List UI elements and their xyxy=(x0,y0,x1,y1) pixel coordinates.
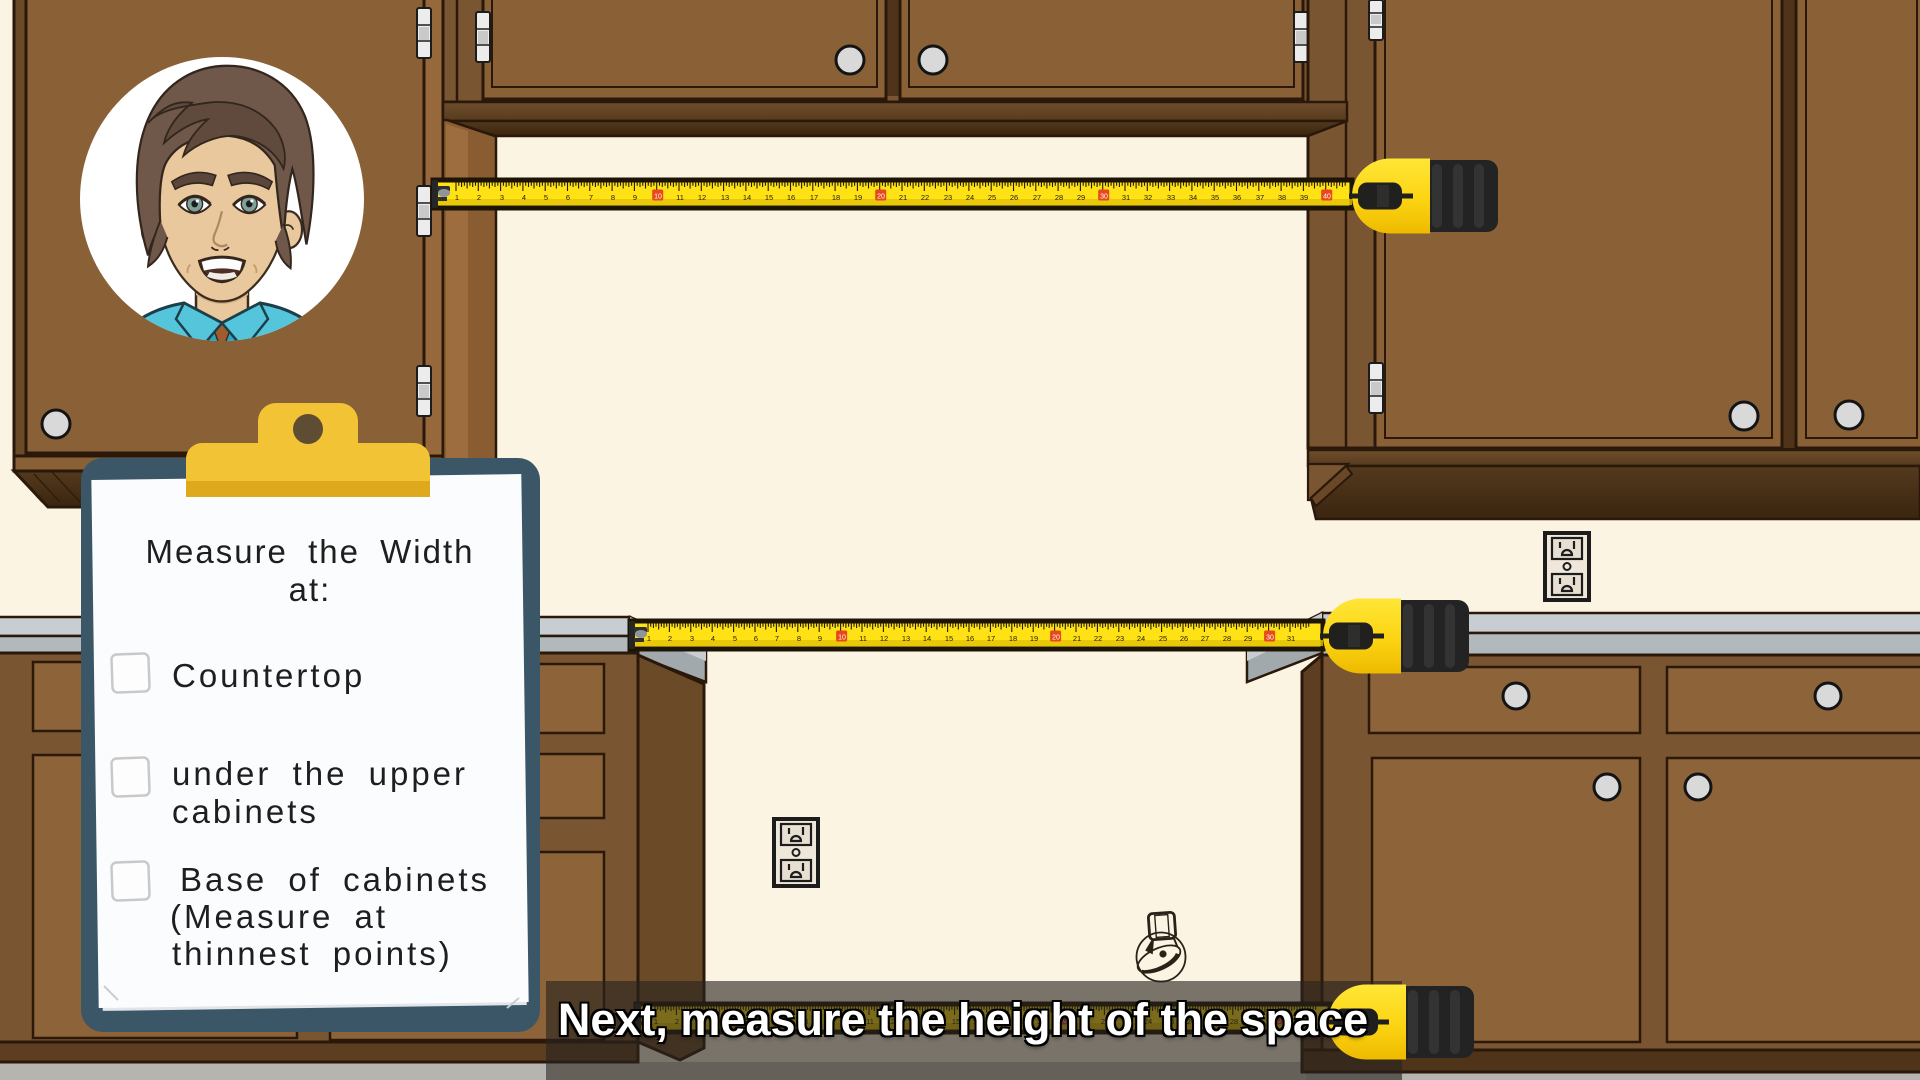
svg-text:6: 6 xyxy=(566,193,570,202)
svg-text:19: 19 xyxy=(1030,634,1038,643)
svg-text:18: 18 xyxy=(832,193,840,202)
svg-text:24: 24 xyxy=(966,193,974,202)
svg-text:4: 4 xyxy=(522,193,526,202)
svg-text:40: 40 xyxy=(1323,194,1331,201)
svg-text:4: 4 xyxy=(711,634,715,643)
svg-text:30: 30 xyxy=(1100,194,1108,201)
svg-text:16: 16 xyxy=(966,634,974,643)
svg-text:31: 31 xyxy=(1122,193,1130,202)
svg-text:10: 10 xyxy=(838,635,846,642)
svg-text:2: 2 xyxy=(668,634,672,643)
svg-text:10: 10 xyxy=(654,194,662,201)
svg-text:22: 22 xyxy=(921,193,929,202)
svg-text:1: 1 xyxy=(455,193,459,202)
svg-text:2: 2 xyxy=(477,193,481,202)
svg-text:15: 15 xyxy=(945,634,953,643)
svg-text:22: 22 xyxy=(1094,634,1102,643)
svg-text:27: 27 xyxy=(1033,193,1041,202)
svg-text:12: 12 xyxy=(880,634,888,643)
svg-text:21: 21 xyxy=(1073,634,1081,643)
svg-text:13: 13 xyxy=(721,193,729,202)
svg-text:9: 9 xyxy=(818,634,822,643)
svg-text:5: 5 xyxy=(544,193,548,202)
svg-text:39: 39 xyxy=(1300,193,1308,202)
svg-text:26: 26 xyxy=(1010,193,1018,202)
svg-text:6: 6 xyxy=(754,634,758,643)
svg-text:12: 12 xyxy=(698,193,706,202)
svg-text:14: 14 xyxy=(923,634,931,643)
svg-text:18: 18 xyxy=(1009,634,1017,643)
svg-text:20: 20 xyxy=(1052,635,1060,642)
svg-text:24: 24 xyxy=(1137,634,1145,643)
svg-text:23: 23 xyxy=(1116,634,1124,643)
svg-text:30: 30 xyxy=(1266,635,1274,642)
svg-text:20: 20 xyxy=(877,194,885,201)
svg-text:9: 9 xyxy=(633,193,637,202)
svg-text:26: 26 xyxy=(1180,634,1188,643)
svg-text:15: 15 xyxy=(765,193,773,202)
svg-text:1: 1 xyxy=(647,634,651,643)
svg-text:11: 11 xyxy=(859,634,867,643)
svg-text:5: 5 xyxy=(733,634,737,643)
svg-text:3: 3 xyxy=(690,634,694,643)
svg-text:17: 17 xyxy=(810,193,818,202)
svg-text:38: 38 xyxy=(1278,193,1286,202)
svg-text:25: 25 xyxy=(988,193,996,202)
svg-text:3: 3 xyxy=(500,193,504,202)
svg-text:16: 16 xyxy=(787,193,795,202)
svg-text:13: 13 xyxy=(902,634,910,643)
svg-text:33: 33 xyxy=(1167,193,1175,202)
svg-text:7: 7 xyxy=(775,634,779,643)
svg-text:31: 31 xyxy=(1287,634,1295,643)
svg-text:7: 7 xyxy=(589,193,593,202)
svg-text:11: 11 xyxy=(676,193,684,202)
svg-text:19: 19 xyxy=(854,193,862,202)
svg-text:29: 29 xyxy=(1077,193,1085,202)
svg-text:17: 17 xyxy=(987,634,995,643)
svg-text:8: 8 xyxy=(797,634,801,643)
svg-text:29: 29 xyxy=(1244,634,1252,643)
svg-text:28: 28 xyxy=(1055,193,1063,202)
svg-text:27: 27 xyxy=(1201,634,1209,643)
svg-text:14: 14 xyxy=(743,193,751,202)
svg-text:28: 28 xyxy=(1223,634,1231,643)
svg-text:8: 8 xyxy=(611,193,615,202)
svg-text:23: 23 xyxy=(944,193,952,202)
svg-text:34: 34 xyxy=(1189,193,1197,202)
svg-text:21: 21 xyxy=(899,193,907,202)
svg-text:35: 35 xyxy=(1211,193,1219,202)
svg-text:25: 25 xyxy=(1159,634,1167,643)
svg-text:32: 32 xyxy=(1144,193,1152,202)
svg-text:37: 37 xyxy=(1256,193,1264,202)
svg-text:36: 36 xyxy=(1233,193,1241,202)
